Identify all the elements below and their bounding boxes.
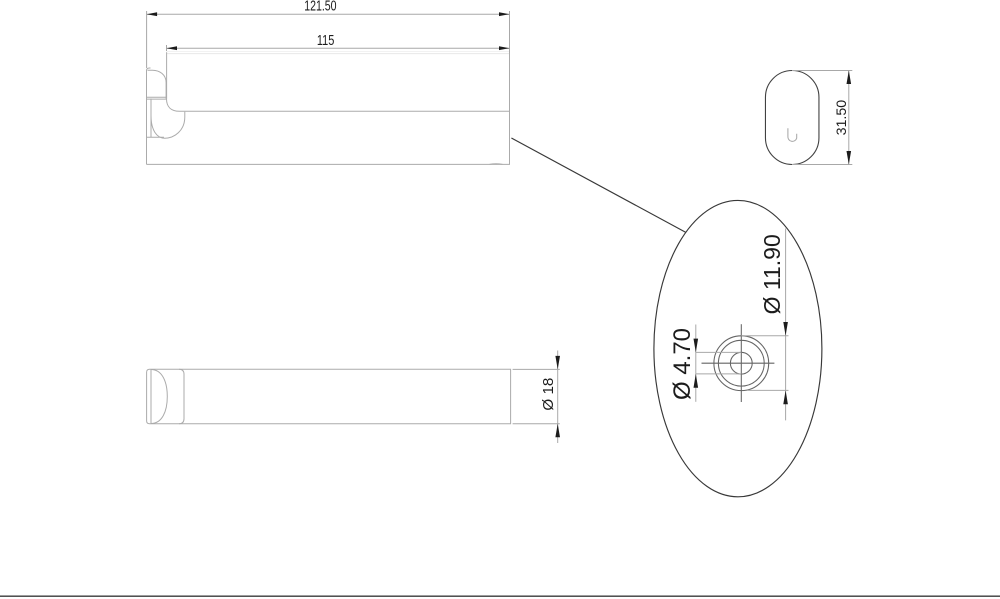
svg-text:Ø 4.70: Ø 4.70 (669, 328, 696, 400)
svg-text:31.50: 31.50 (834, 100, 850, 136)
svg-text:Ø 11.90: Ø 11.90 (759, 234, 785, 314)
svg-text:121.50: 121.50 (304, 0, 336, 14)
svg-text:Ø 18: Ø 18 (540, 378, 557, 411)
svg-text:115: 115 (317, 31, 334, 48)
